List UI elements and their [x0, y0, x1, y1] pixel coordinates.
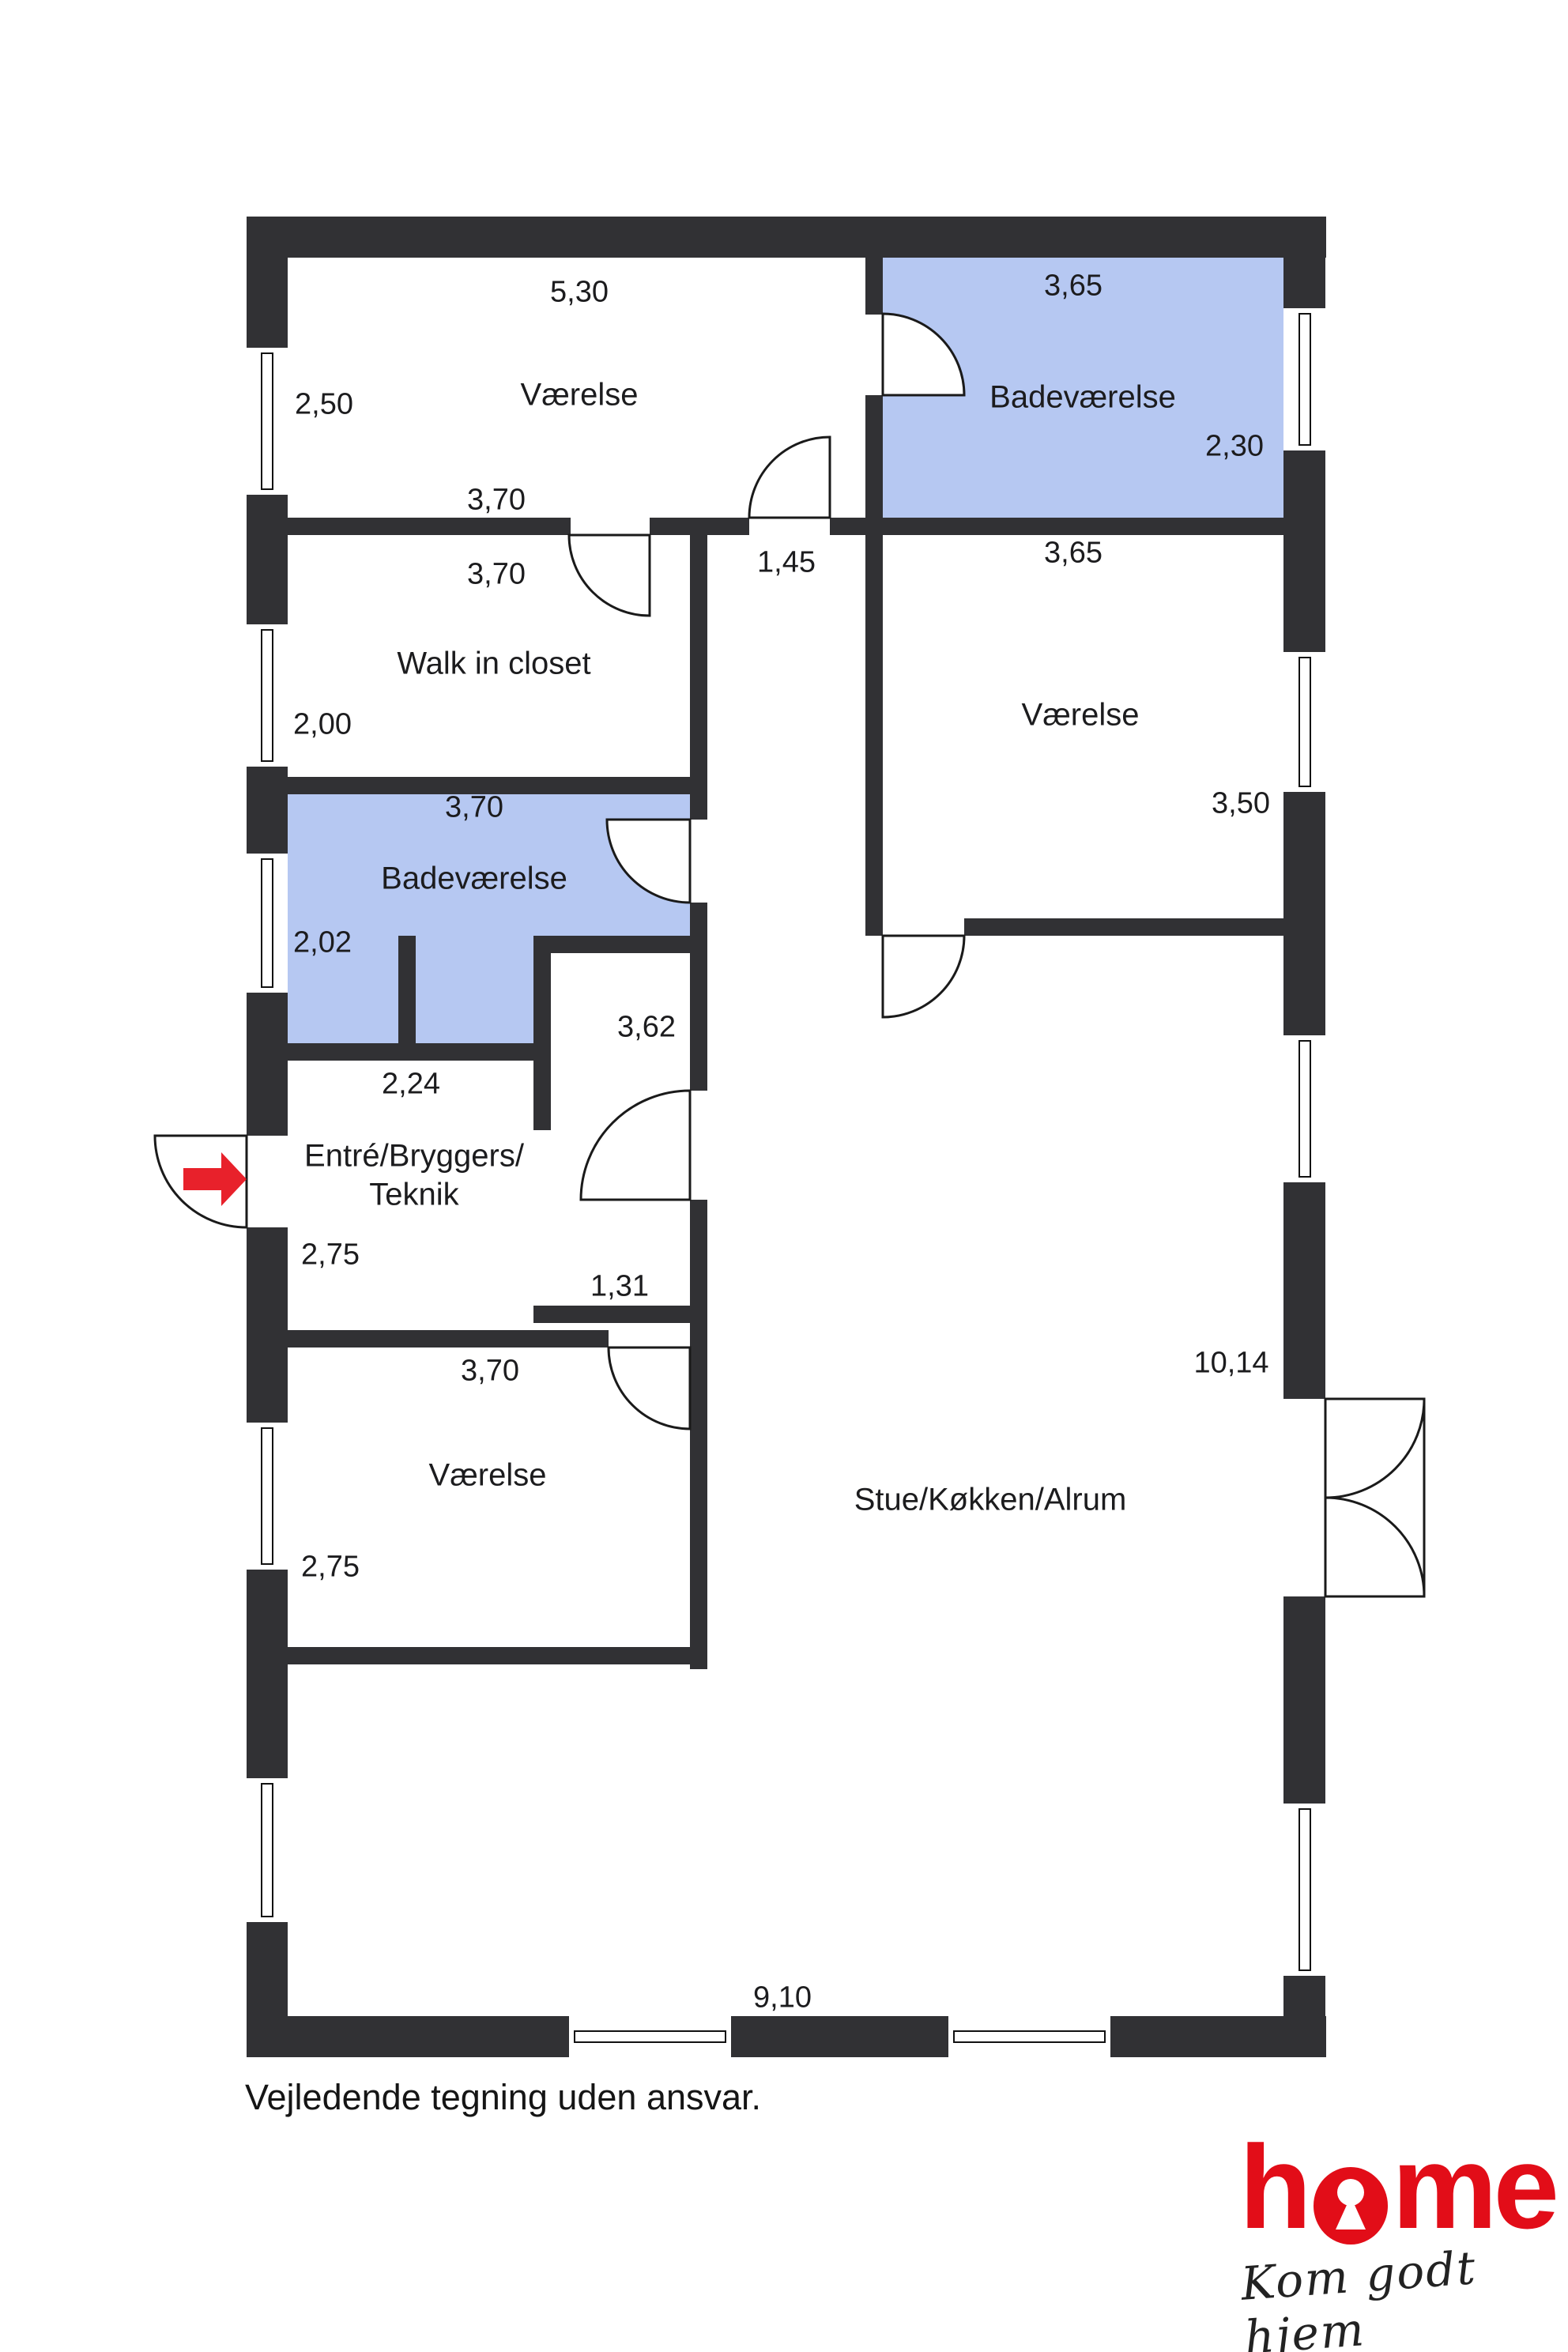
room-label: Entré/Bryggers/: [304, 1139, 524, 1174]
dim-label: 1,31: [590, 1270, 649, 1304]
door-arc: [609, 1347, 690, 1429]
door-arc: [883, 936, 964, 1017]
door-arc: [749, 437, 830, 518]
door-arc: [883, 314, 964, 395]
double-door-arc: [1325, 1498, 1424, 1596]
floor-plan: 5,30 Værelse 2,50 3,70 3,70 Walk in clos…: [0, 0, 1568, 2352]
dim-label: 2,50: [295, 388, 353, 422]
dim-label: 2,02: [293, 926, 352, 960]
dim-label: 10,14: [1193, 1347, 1268, 1381]
home-logo: h me Kom godt hjem: [1239, 2128, 1555, 2352]
dim-label: 3,65: [1044, 537, 1102, 571]
keyhole-icon: [1337, 2179, 1364, 2206]
room-label: Badeværelse: [989, 380, 1176, 416]
dim-label: 3,50: [1212, 787, 1270, 821]
door-arc: [569, 535, 650, 616]
dim-label: 3,70: [467, 558, 526, 592]
room-label: Teknik: [369, 1178, 458, 1213]
dim-label: 3,65: [1044, 269, 1102, 303]
dim-label: 2,30: [1205, 430, 1264, 464]
floor-plan-page: 5,30 Værelse 2,50 3,70 3,70 Walk in clos…: [0, 0, 1568, 2352]
room-label: Værelse: [521, 378, 639, 413]
dim-label: 2,75: [301, 1551, 360, 1585]
dim-label: 2,24: [382, 1068, 440, 1102]
logo-letter-h: h: [1239, 2128, 1308, 2246]
dim-label: 3,70: [445, 791, 503, 825]
room-label: Walk in closet: [397, 646, 590, 682]
dim-label: 1,45: [757, 546, 816, 580]
dim-label: 3,70: [461, 1355, 519, 1389]
dim-label: 5,30: [550, 276, 609, 310]
logo-letters-me: me: [1392, 2128, 1555, 2246]
room-label: Værelse: [1022, 698, 1140, 733]
room-label: Værelse: [429, 1458, 547, 1494]
room-label: Stue/Køkken/Alrum: [854, 1483, 1127, 1518]
logo-o-disc: [1314, 2167, 1389, 2245]
logo-wordmark: h me: [1239, 2128, 1555, 2246]
door-arc: [581, 1091, 690, 1200]
dim-label: 3,62: [617, 1011, 676, 1045]
dim-label: 3,70: [467, 484, 526, 518]
dim-label: 2,00: [293, 708, 352, 742]
dim-label: 2,75: [301, 1238, 360, 1272]
room-label: Badeværelse: [381, 861, 567, 897]
dim-label: 9,10: [753, 1981, 812, 2015]
disclaimer-text: Vejledende tegning uden ansvar.: [245, 2077, 761, 2118]
double-door-arc: [1325, 1399, 1424, 1498]
door-arc: [607, 820, 690, 903]
